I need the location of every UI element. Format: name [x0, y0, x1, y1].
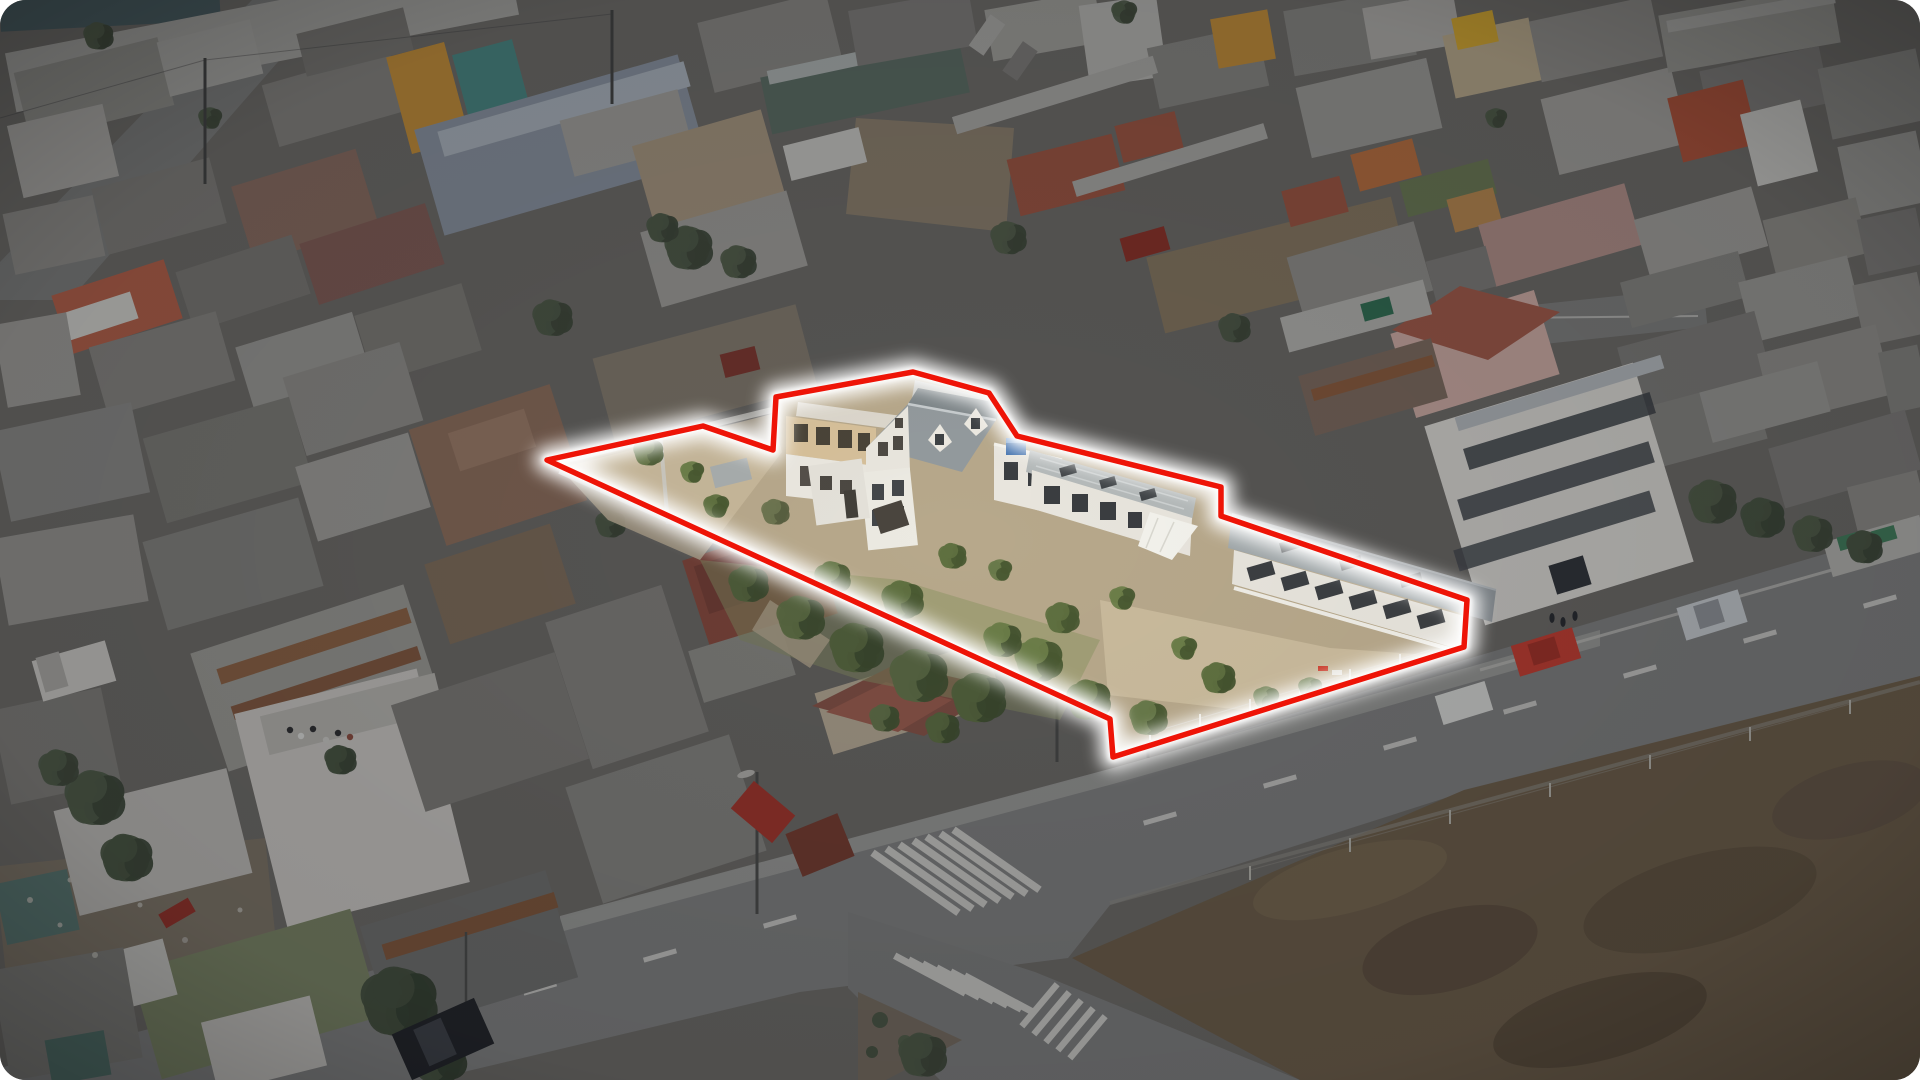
vignette: [0, 0, 1920, 1080]
aerial-photo: [0, 0, 1920, 1080]
screenshot-frame: [0, 0, 1920, 1080]
